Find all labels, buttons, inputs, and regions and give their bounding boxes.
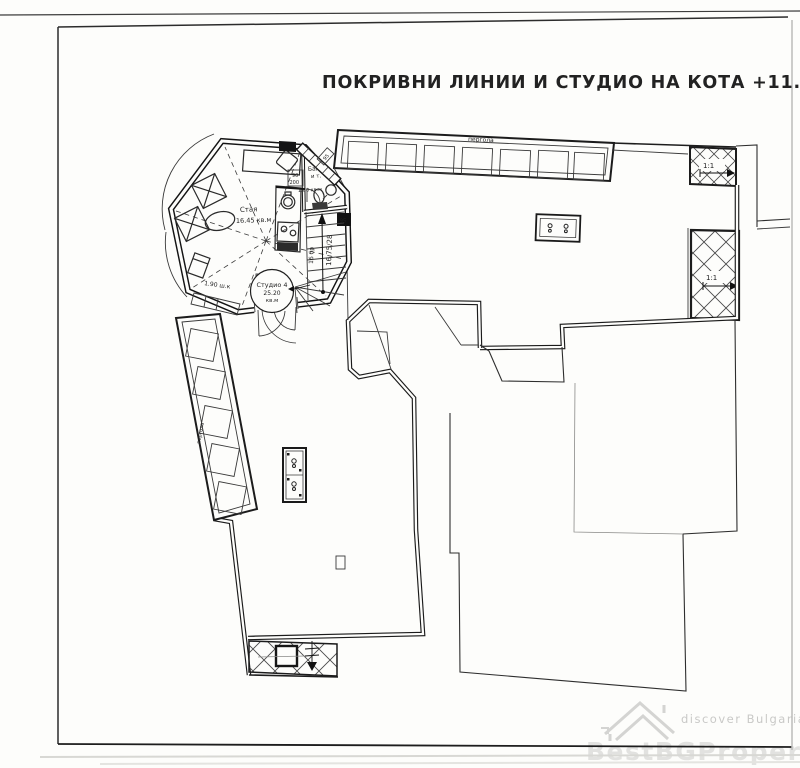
slope-label-right: 1:1 bbox=[706, 274, 717, 282]
top-pergola: пергола bbox=[334, 130, 614, 181]
left-pergola: пергола bbox=[176, 314, 257, 520]
door-bathroom-height: 200 bbox=[290, 180, 300, 186]
house-logo-icon bbox=[601, 703, 674, 741]
roof-right-structures: 1:1 1:1 bbox=[612, 143, 790, 320]
bottom-hatched-strip bbox=[249, 641, 338, 677]
bathroom-name2: и т. bbox=[311, 173, 322, 180]
stair-dimensions-label: 16.75/28 bbox=[325, 234, 334, 266]
watermark-tagline: discover Bulgaria bbox=[681, 712, 800, 726]
roof-vent-box-vertical bbox=[283, 448, 306, 502]
hatched-panel-top: 1:1 bbox=[690, 147, 736, 186]
hatched-panel-right: 1:1 bbox=[688, 228, 739, 320]
studio-badge-line1: Студио 4 bbox=[256, 281, 287, 289]
wall-block bbox=[279, 141, 296, 152]
room-name: Стая bbox=[240, 205, 258, 214]
watermark: discover Bulgaria BestBGProperties bbox=[586, 703, 800, 766]
stair-steps-label: 16 бр bbox=[308, 247, 316, 264]
scan-frame bbox=[0, 11, 800, 764]
door-bathroom-width: 90 bbox=[292, 173, 298, 179]
room-area: 16.45 кв.м bbox=[236, 216, 272, 225]
bathroom-area: 1.80 кв.м bbox=[298, 187, 323, 194]
studio-room: Баня и т. 1.80 кв.м 95 bbox=[162, 134, 351, 343]
slope-label-top: 1:1 bbox=[703, 162, 714, 170]
studio-badge-line2: 25.20 bbox=[263, 290, 280, 297]
door-small-label: 95 bbox=[322, 153, 331, 162]
pergola-top-label: пергола bbox=[468, 136, 494, 144]
studio-badge-line3: кв.м bbox=[266, 298, 278, 304]
roof-vent-box-horizontal bbox=[536, 214, 581, 242]
electrical-panel: 95 bbox=[337, 213, 351, 226]
drawing-title: ПОКРИВНИ ЛИНИИ И СТУДИО НА КОТА +11.22 bbox=[322, 73, 800, 93]
floorplan-canvas: discover Bulgaria BestBGProperties ПОКРИ… bbox=[0, 0, 800, 768]
scanned-floorplan-page: discover Bulgaria BestBGProperties ПОКРИ… bbox=[0, 0, 800, 768]
